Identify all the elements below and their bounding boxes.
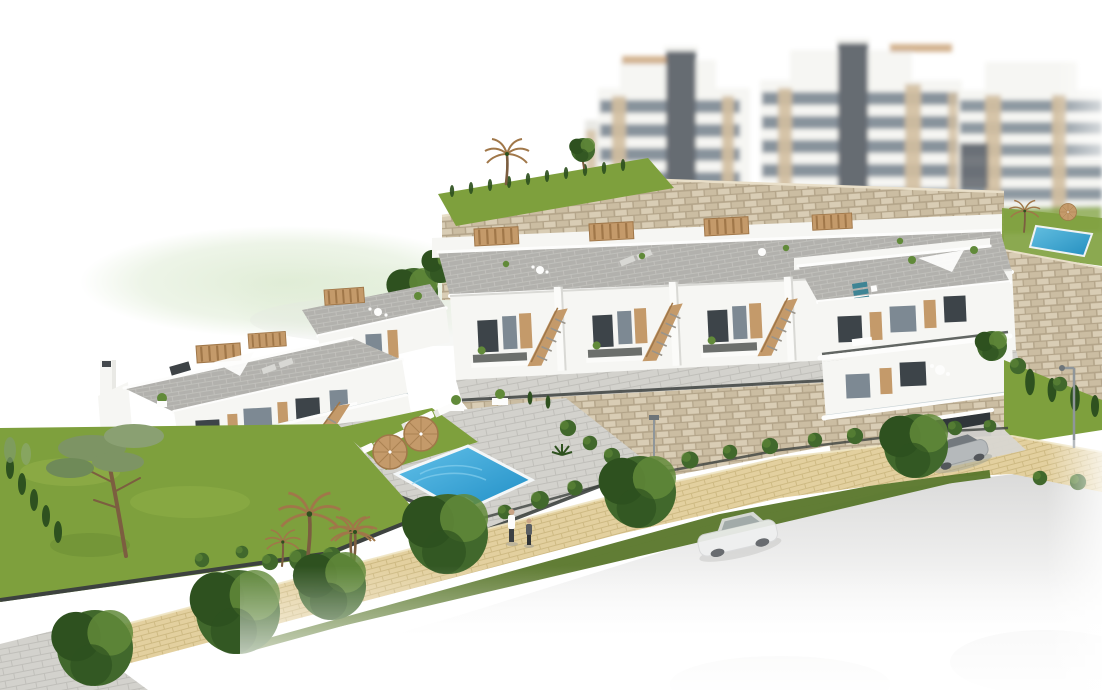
terrace-palm-tree bbox=[485, 139, 529, 184]
background-parasol bbox=[1060, 204, 1077, 221]
terrace-tree bbox=[569, 138, 595, 162]
architectural-render: Aerial 3D architectural rendering of a h… bbox=[0, 0, 1102, 690]
pool-parasol-2 bbox=[404, 417, 438, 451]
pool-parasol-1 bbox=[373, 435, 407, 469]
render-canvas: Aerial 3D architectural rendering of a h… bbox=[0, 0, 1102, 690]
